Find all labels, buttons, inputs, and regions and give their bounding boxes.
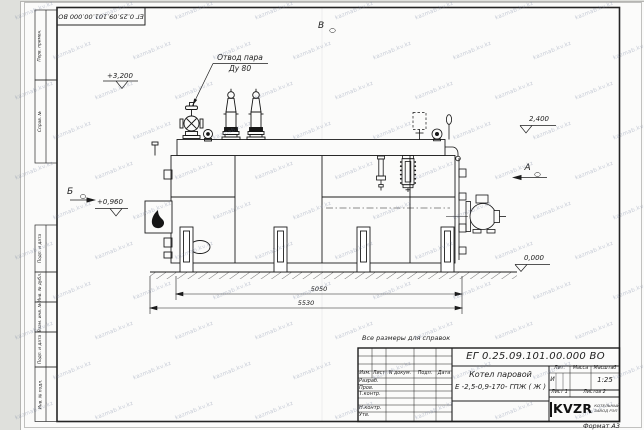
- kvzr-logo-text: KVZR: [553, 403, 592, 416]
- safety-valve-2: [247, 89, 265, 140]
- steam-outlet-valve: [180, 103, 203, 139]
- elevation-0000: 0,000: [516, 255, 552, 262]
- view-marker-v: В: [318, 22, 324, 31]
- kvzr-logo-caption-line2: ЗАВОД РЭП: [594, 409, 619, 414]
- burner: [145, 201, 172, 233]
- dimension-5050: 5050: [289, 286, 349, 293]
- kvzr-logo: KVZR КОТЕЛЬНЫЙ ЗАВОД РЭП: [551, 398, 618, 420]
- mass-header: Масса: [570, 367, 591, 372]
- corner-doc-number: ЕГ 0.25.09.101.00.000 ВО: [57, 8, 145, 26]
- drawing-linework: [0, 0, 644, 430]
- steam-outlet-label-line1: Отвод пара: [211, 54, 269, 62]
- col-header-podp: Подп.: [414, 372, 436, 377]
- elevation-3200: +3,200: [100, 73, 140, 80]
- elevation-0960: +0,960: [90, 199, 130, 206]
- col-header-data: Дата: [436, 372, 452, 377]
- col-header-dokum: N докум.: [386, 372, 414, 377]
- col-header-izm: Изм.: [358, 372, 372, 377]
- margin-label-sprav: Справ. №: [35, 80, 46, 163]
- margin-label-inv-dubl: Инв. № дубл.: [35, 272, 46, 302]
- lit-value: И: [549, 377, 556, 383]
- reference-note: Все размеры для справок: [362, 335, 450, 342]
- scale-value: 1:25: [591, 377, 619, 384]
- row-label-utv: Утв.: [359, 413, 370, 418]
- row-label-tkontr: Т.контр.: [359, 392, 381, 397]
- margin-label-podp-data-2: Подп. и дата: [35, 332, 46, 367]
- lit-header: Лит.: [549, 367, 570, 372]
- boiler-body: [152, 140, 455, 264]
- row-label-nkontr: Н.контр.: [359, 406, 381, 411]
- row-label-razrab: Разраб.: [359, 379, 379, 384]
- sheet-number: Лист 1: [549, 391, 570, 396]
- row-label-prov: Пров.: [359, 386, 374, 391]
- product-name-line2: Е -2,5-0,9-170- ГПЖ ( Ж ): [452, 384, 549, 391]
- col-header-list: Лист: [372, 372, 386, 377]
- drawing-sheet-photo: ЕГ 0.25.09.101.00.000 ВО Перв. примен. С…: [0, 0, 644, 430]
- format-label: Формат А3: [548, 423, 620, 430]
- sheets-total: Листов 2: [570, 391, 619, 396]
- product-name-line1: Котел паровой: [452, 371, 549, 379]
- margin-label-podp-data-1: Подп. и дата: [35, 225, 46, 272]
- steam-outlet-label-line2: Ду 80: [211, 65, 269, 73]
- view-marker-b: Б: [67, 188, 73, 197]
- dimension-5530: 5530: [276, 300, 336, 307]
- margin-label-perv-primen: Перв. примен.: [35, 10, 46, 80]
- view-marker-a: А: [525, 164, 531, 173]
- elevation-2400: 2,400: [521, 116, 557, 123]
- safety-valve-1: [222, 89, 240, 140]
- margin-label-vzam-inv: Взам. инв. №: [35, 302, 46, 332]
- scale-header: Масштаб: [591, 367, 619, 372]
- dimension-lines: [150, 276, 462, 314]
- margin-label-inv-podl: Инв. № подл.: [35, 367, 46, 421]
- title-block-doc-number: ЕГ 0.25.09.101.00.000 ВО: [452, 352, 619, 362]
